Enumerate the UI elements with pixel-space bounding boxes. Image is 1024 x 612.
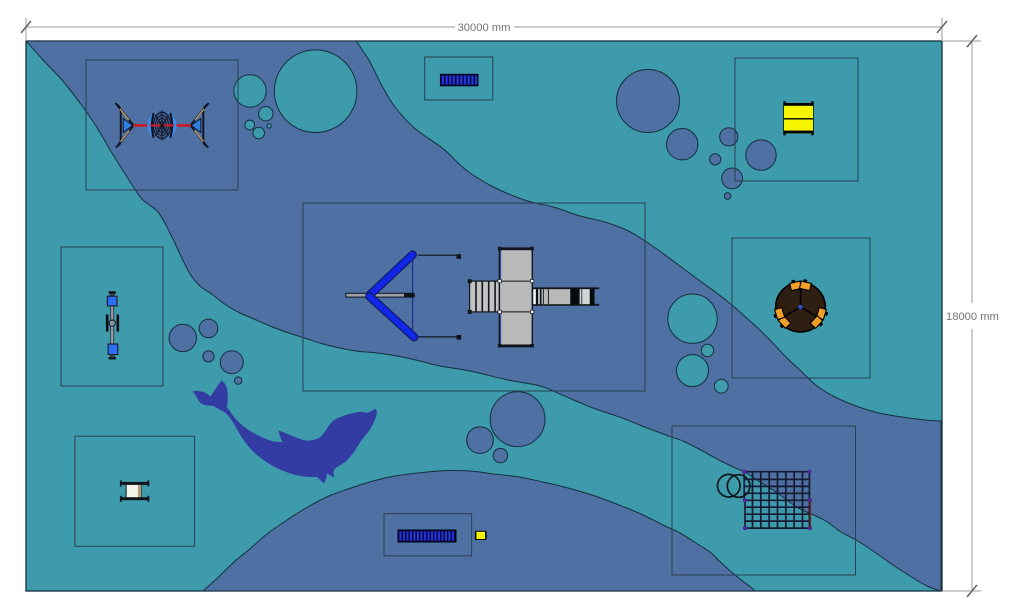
svg-text:30000 mm: 30000 mm — [458, 22, 511, 34]
svg-text:18000 mm: 18000 mm — [946, 311, 999, 323]
